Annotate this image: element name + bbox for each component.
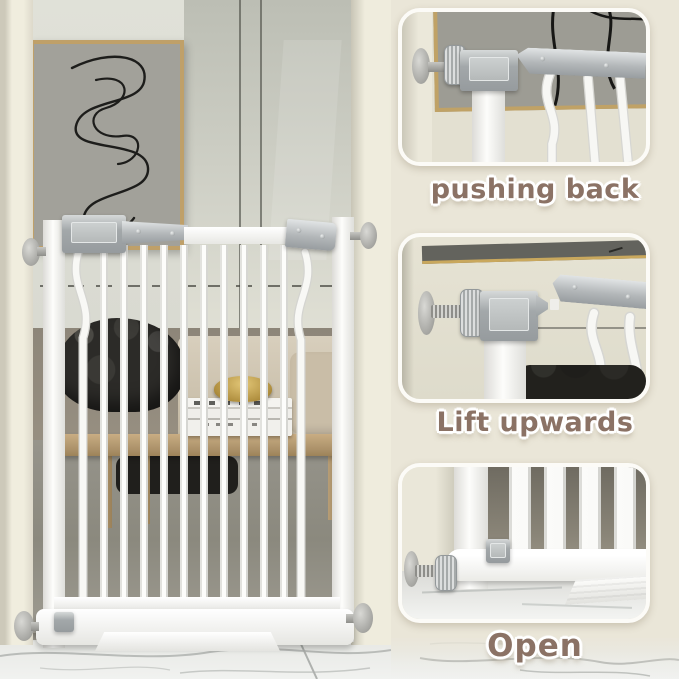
gate-bars-closeup — [402, 12, 646, 162]
screw-icon — [625, 294, 630, 299]
closeup-panel-lift-upwards — [398, 233, 650, 403]
screw-icon — [296, 228, 301, 233]
latch-housing-face — [469, 57, 509, 81]
screw-icon — [540, 56, 545, 61]
instruction-steps: pushing back — [391, 0, 679, 679]
product-feature-image: pushing back — [0, 0, 679, 679]
bottom-latch-closeup — [486, 539, 510, 563]
screw-icon — [170, 231, 175, 236]
gate-post-closeup — [472, 89, 505, 162]
wall-anchor-disc — [360, 222, 377, 249]
latch-housing-face — [489, 298, 529, 331]
step-label-open: Open — [391, 628, 679, 664]
anchor-rod — [37, 247, 46, 256]
step-label-lift-upwards: Lift upwards — [391, 407, 679, 438]
latch-housing — [62, 215, 126, 253]
latch-housing-closeup — [480, 291, 538, 341]
safety-gate — [0, 0, 391, 679]
dark-blanket-closeup — [518, 365, 646, 399]
gate-top-rail — [184, 227, 291, 244]
gate-bars-closeup — [498, 467, 646, 551]
tension-knob — [435, 555, 457, 591]
wall-catch — [550, 299, 559, 310]
gate-handle — [285, 219, 337, 251]
wall-anchor-disc — [353, 603, 373, 633]
screw-icon — [320, 234, 325, 239]
anchor-rod — [31, 622, 39, 631]
bottom-latch-block — [54, 612, 74, 632]
screw-icon — [572, 285, 577, 290]
gate-right-post — [332, 217, 354, 642]
closeup-panel-open — [398, 463, 650, 623]
room-photo — [0, 0, 391, 679]
step-ramp — [95, 632, 280, 651]
gate-left-post — [43, 220, 65, 648]
latch-housing-closeup — [460, 50, 518, 91]
gate-bottom-bar-closeup — [446, 549, 646, 581]
latch-housing-face — [490, 543, 506, 558]
gate-post-closeup — [484, 337, 526, 399]
screw-icon — [136, 229, 141, 234]
closeup-panel-pushing-back — [398, 8, 650, 166]
floor-vein — [522, 603, 632, 609]
screw-icon — [604, 63, 609, 68]
step-label-pushing-back: pushing back — [391, 174, 679, 205]
latch-housing-face — [71, 222, 117, 243]
